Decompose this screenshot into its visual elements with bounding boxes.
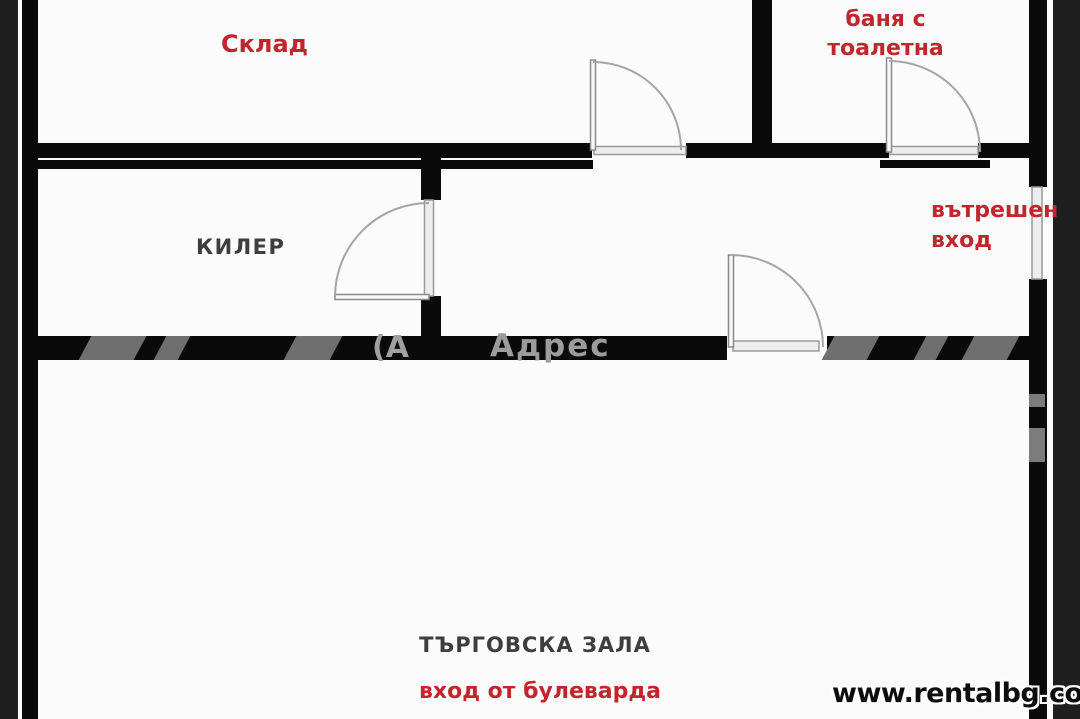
bathroom-door-threshold <box>890 147 978 155</box>
storage-room-label: Склад <box>221 30 308 58</box>
pantry-door-arc <box>335 203 429 297</box>
bathroom-door-arc <box>889 61 980 152</box>
bathroom-door-leaf <box>887 58 892 152</box>
hall-door-threshold <box>733 341 819 351</box>
storage-door-arc <box>593 62 681 150</box>
bathroom-room-label: баня с тоалетна <box>813 5 958 63</box>
trade-hall-label: ТЪРГОВСКА ЗАЛА <box>385 633 685 657</box>
pantry-door-threshold <box>425 200 434 296</box>
storage-door-leaf <box>591 60 596 150</box>
bathroom-label-line2: тоалетна <box>813 34 958 63</box>
doors-overlay <box>0 0 1080 719</box>
boulevard-entrance-label: вход от булеварда <box>385 679 695 704</box>
hall-door-arc <box>731 255 823 347</box>
pantry-room-label: КИЛЕР <box>196 235 285 259</box>
floorplan-image: (А Адрес Склад баня с тоалетна КИЛЕР вът… <box>0 0 1080 719</box>
inner-entrance-label-line1: вътрешен <box>931 196 1058 226</box>
hall-door-leaf <box>729 255 734 347</box>
bathroom-label-line1: баня с <box>813 5 958 34</box>
inner-entrance-label: вътрешен вход <box>931 196 1058 256</box>
inner-entrance-label-line2: вход <box>931 226 1058 256</box>
storage-door-threshold <box>594 147 686 155</box>
site-watermark: www.rentalbg.com <box>832 678 1080 709</box>
pantry-door-leaf <box>335 295 429 300</box>
